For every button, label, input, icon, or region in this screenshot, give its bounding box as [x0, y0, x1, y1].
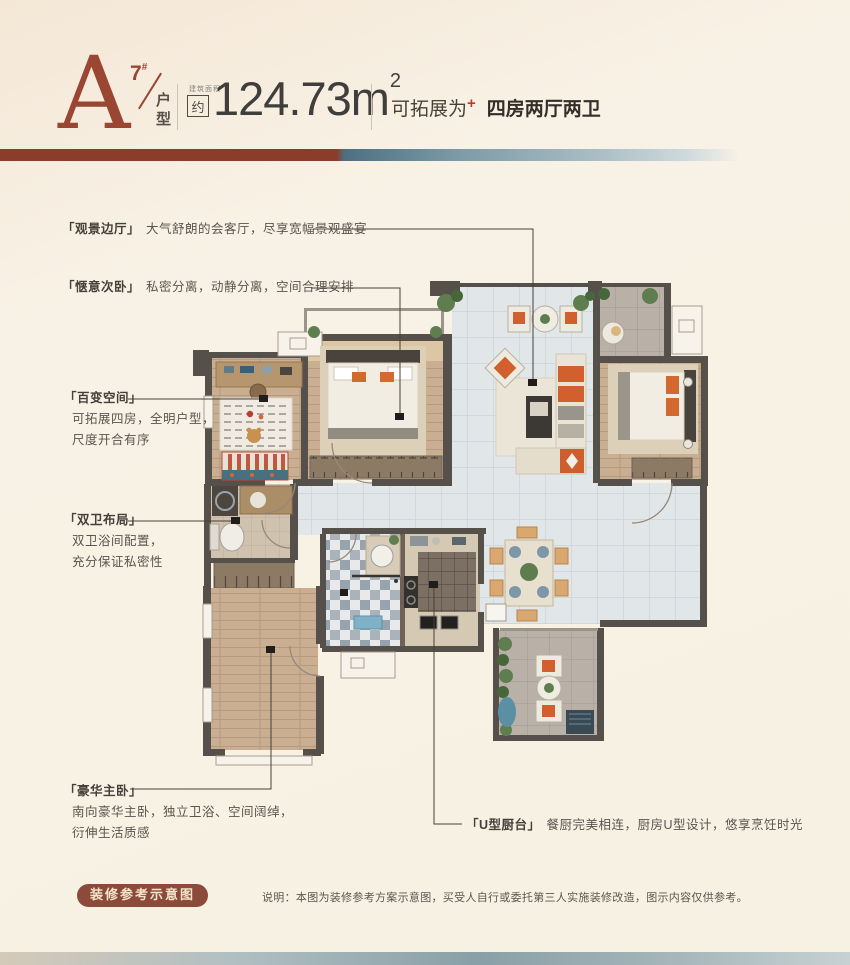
annotation-view-hall: 「观景边厅」大气舒朗的会客厅，尽享宽幅景观盛宴 — [62, 219, 367, 240]
building-number-suffix: # — [142, 62, 148, 73]
header-divider-1 — [177, 84, 178, 130]
disclaimer-text: 说明：本图为装修参考方案示意图，买受人自行或委托第三人实施装修改造，图示内容仅供… — [262, 889, 748, 905]
annotation-dual-bath: 「双卫布局」 双卫浴间配置， 充分保证私密性 — [64, 510, 163, 573]
annotation-u-kitchen: 「U型厨台」餐厨完美相连，厨房U型设计，悠享烹饪时光 — [466, 815, 803, 836]
corridor-floor — [296, 483, 456, 535]
annotation-flex-space: 「百变空间」 可拓展四房，全明户型， 尺度开合有序 — [64, 388, 215, 451]
expand-line: 可拓展为+四房两厅两卫 — [391, 94, 601, 121]
floorplan-page: A 7# 户型 建筑面积 约 124.73m2 可拓展为+四房两厅两卫 「观景边… — [0, 0, 850, 965]
building-number: 7# — [130, 62, 147, 86]
unit-type-label: 户型 — [152, 92, 173, 130]
approx-box: 约 — [187, 95, 209, 117]
unit-letter: A — [58, 44, 130, 144]
expand-rooms: 四房两厅两卫 — [487, 99, 601, 120]
bottom-watercolor-stripe — [0, 952, 850, 965]
annotation-master-bedroom: 「豪华主卧」 南向豪华主卧，独立卫浴、空间阔绰， 衍伸生活质感 — [64, 781, 293, 844]
area-superscript: 2 — [390, 70, 400, 92]
expand-label: 可拓展为 — [391, 99, 467, 120]
secondary-bedroom-furniture — [308, 326, 442, 478]
master-bedroom-floor — [210, 588, 318, 750]
expand-plus: + — [467, 95, 476, 112]
kitchen-floor — [418, 552, 476, 612]
decor-reference-badge: 装修参考示意图 — [77, 884, 208, 907]
header-banner-stripe — [0, 149, 740, 161]
annotation-cozy-bedroom: 「惬意次卧」私密分离，动静分离，空间合理安排 — [62, 277, 354, 298]
closet — [214, 562, 294, 588]
header-divider-2 — [371, 84, 372, 130]
